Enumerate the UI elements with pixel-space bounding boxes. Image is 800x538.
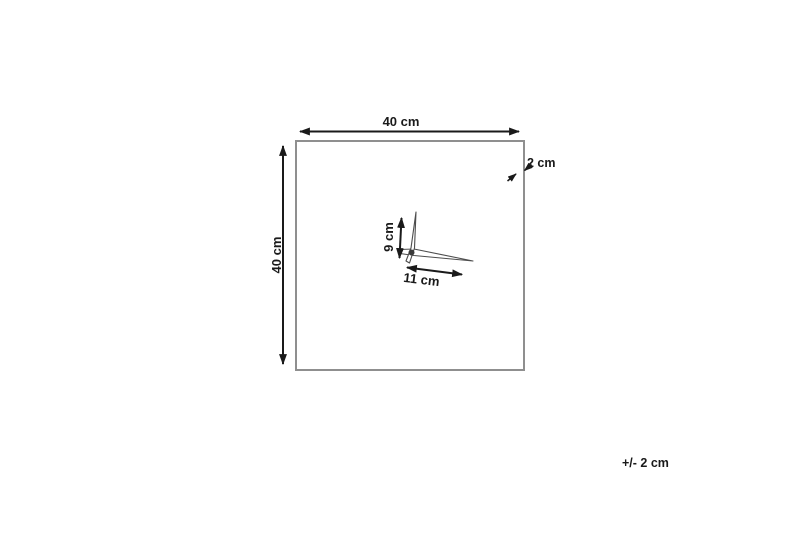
diagram-canvas: 40 cm 40 cm 2 cm 9 cm 11 cm +/- 2 cm — [0, 0, 800, 533]
dimension-diagram: 40 cm 40 cm 2 cm 9 cm 11 cm +/- 2 cm — [0, 0, 800, 538]
width-dimension-label: 40 cm — [383, 114, 420, 129]
hands-hub — [409, 250, 415, 256]
tolerance-note: +/- 2 cm — [622, 456, 669, 470]
minute-hand-dimension-label: 9 cm — [381, 222, 396, 252]
depth-dimension-label: 2 cm — [527, 156, 556, 170]
height-dimension-label: 40 cm — [269, 237, 284, 274]
